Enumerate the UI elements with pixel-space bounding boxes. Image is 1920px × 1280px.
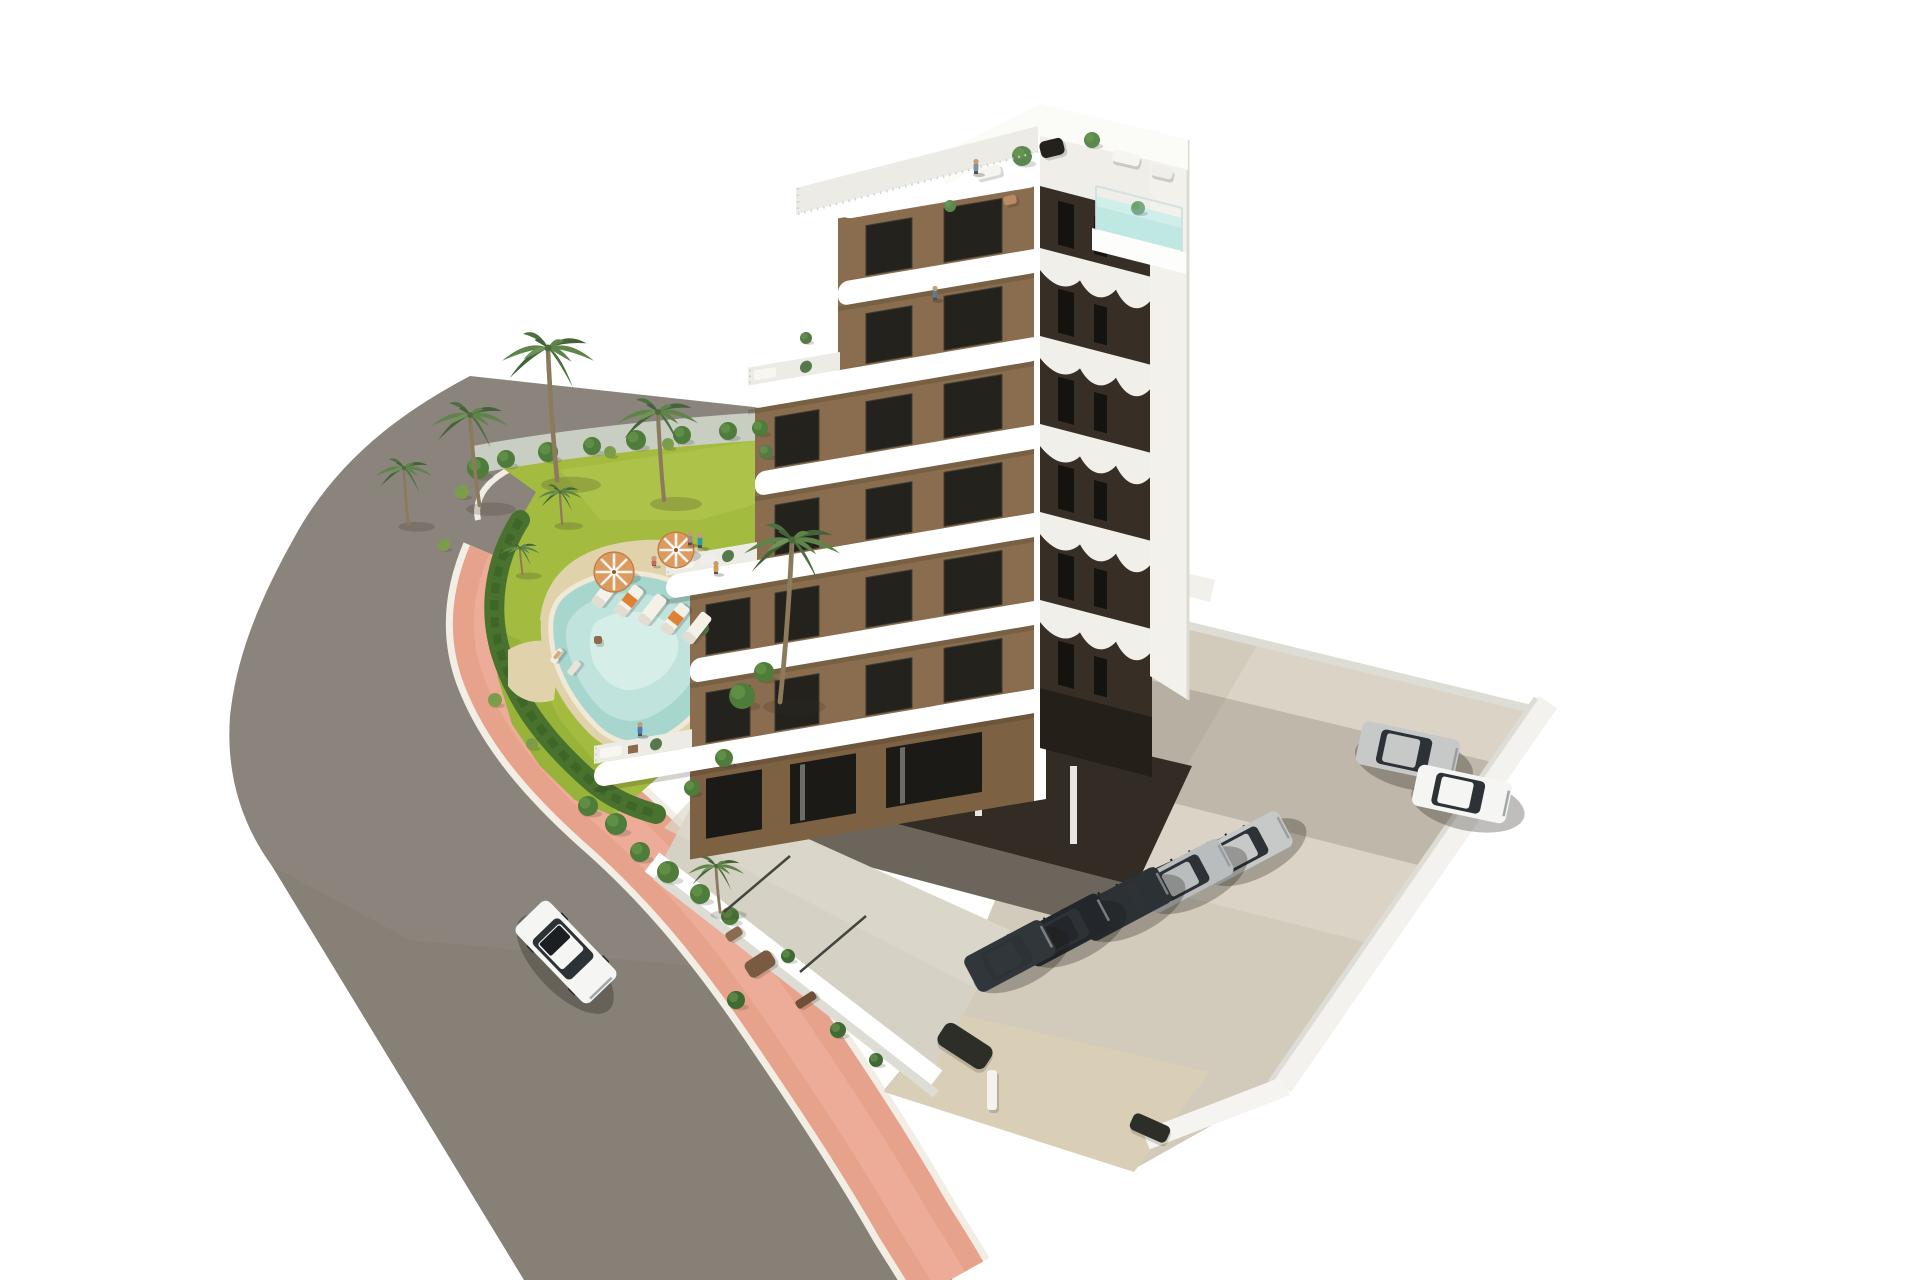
scene-canvas bbox=[0, 0, 1920, 1280]
architectural-render-scene bbox=[0, 0, 1920, 1280]
furniture-13 bbox=[987, 1070, 999, 1113]
garage-column bbox=[1070, 766, 1077, 844]
